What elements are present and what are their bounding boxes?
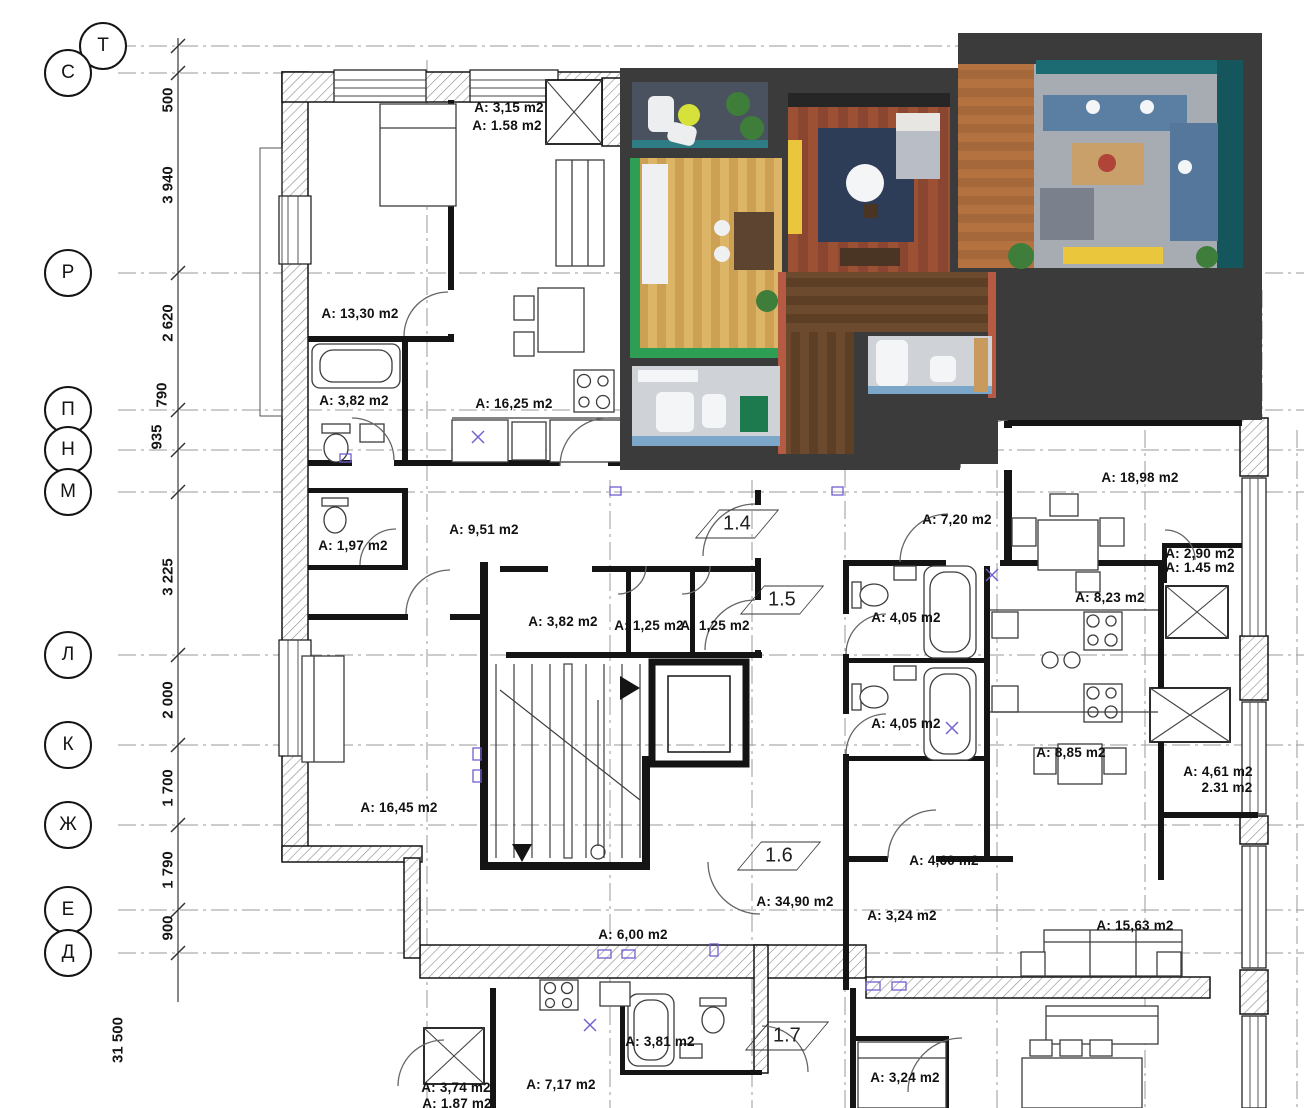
axis-label-С: С (44, 49, 92, 97)
axis-label-Н: Н (44, 426, 92, 474)
axis-label-Е: Е (44, 886, 92, 934)
axis-label-К: К (44, 721, 92, 769)
dimension-text: 2 620 (160, 304, 177, 342)
dimension-text: 935 (149, 424, 166, 449)
axis-label-М: М (44, 468, 92, 516)
dimension-text: 2 000 (160, 681, 177, 719)
axis-label-Р: Р (44, 249, 92, 297)
dimension-text: 500 (160, 87, 177, 112)
dimension-text: 1 700 (160, 769, 177, 807)
axis-label-Л: Л (44, 631, 92, 679)
axis-label-Ж: Ж (44, 801, 92, 849)
dimension-text: 3 940 (160, 166, 177, 204)
axis-layer: ТСРПНМЛКЖЕД5003 9402 6207909353 2252 000… (0, 0, 1304, 1108)
dimension-text: 900 (160, 915, 177, 940)
floor-plan-canvas: A: 3,15 m2A: 1.58 m2A: 13,30 m2A: 3,82 m… (0, 0, 1304, 1108)
dimension-text: 1 790 (160, 851, 177, 889)
dimension-text: 790 (154, 382, 171, 407)
axis-label-Д: Д (44, 929, 92, 977)
overall-dimension-text: 31 500 (110, 1017, 127, 1063)
dimension-text: 3 225 (160, 558, 177, 596)
